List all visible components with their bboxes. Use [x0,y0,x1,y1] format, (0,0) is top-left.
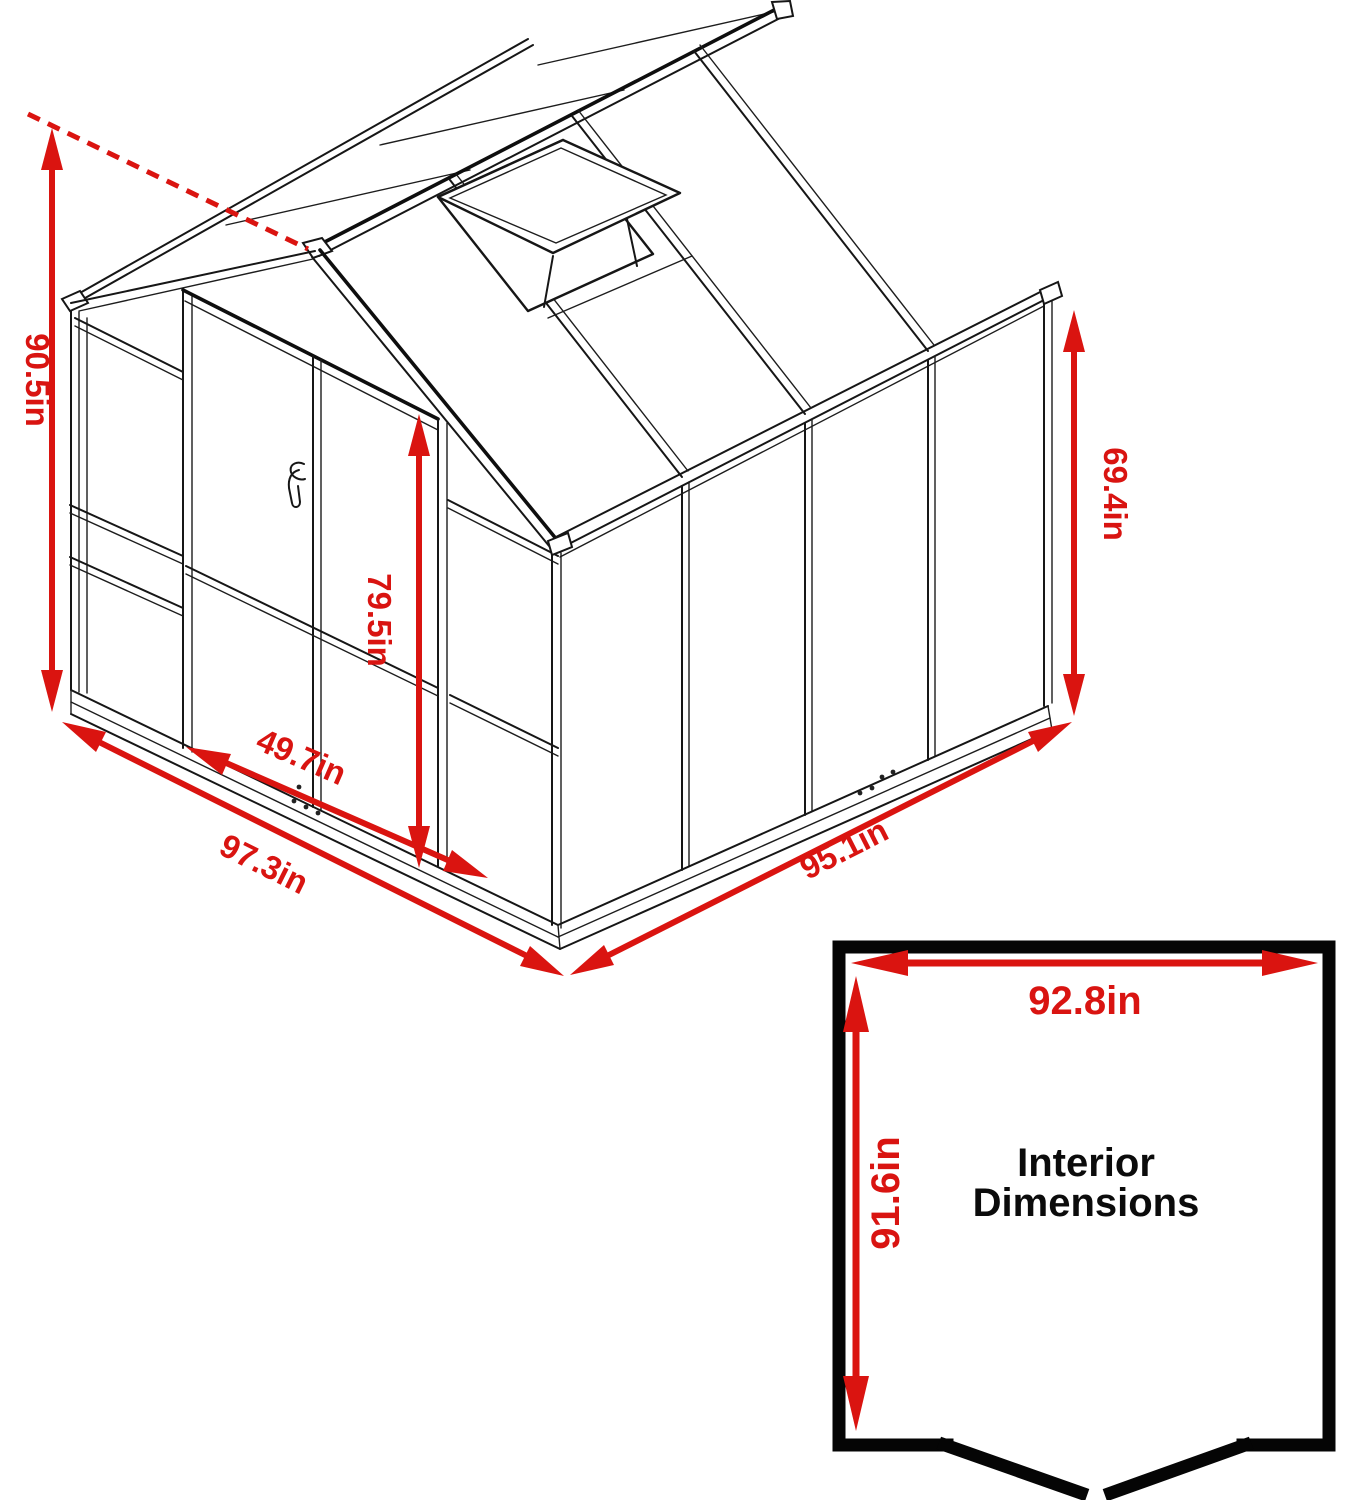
label-wall-height: 69.4in [1097,447,1134,541]
interior-box-caption: Interior Dimensions [973,1141,1200,1225]
label-door-height: 79.5in [361,573,398,667]
roof-right-plane [312,45,1052,557]
label-interior-width: 92.8in [1028,979,1141,1023]
interior-box-door-flap-left [945,1445,1081,1493]
greenhouse-drawing [62,1,1062,949]
front-gable-face [62,251,572,928]
right-side-wall [682,282,1062,870]
interior-box-door-flap-right [1111,1445,1245,1493]
ridge-back-cap [772,1,793,19]
interior-caption-line2: Dimensions [973,1181,1200,1225]
peak-projection-dashed-line [28,114,308,249]
door-handle-icon [289,463,305,507]
label-interior-depth: 91.6in [864,1136,908,1249]
eave-back-right-cap [1040,282,1062,304]
dimension-base-depth: 95.1in [570,722,1072,975]
dimension-wall-height: 69.4in [1063,310,1134,716]
roof-left-plane [71,10,782,306]
diagram-canvas: 90.5in 69.4in 79.5in 49.7in [0,0,1347,1500]
dimension-overall-height: 90.5in [19,128,63,712]
label-overall-height: 90.5in [19,333,56,427]
interior-dimensions-box: 92.8in 91.6in Interior Dimensions [839,947,1329,1493]
dimension-interior-width: 92.8in [851,950,1318,1023]
eave-front-right-cap [548,533,572,555]
label-base-width: 97.3in [214,826,314,901]
interior-caption-line1: Interior [1017,1141,1155,1185]
dimension-door-height: 79.5in [361,414,430,868]
door [183,290,447,870]
greenhouse-dimension-diagram: 90.5in 69.4in 79.5in 49.7in [0,0,1347,1500]
dimension-interior-depth: 91.6in [843,976,908,1431]
